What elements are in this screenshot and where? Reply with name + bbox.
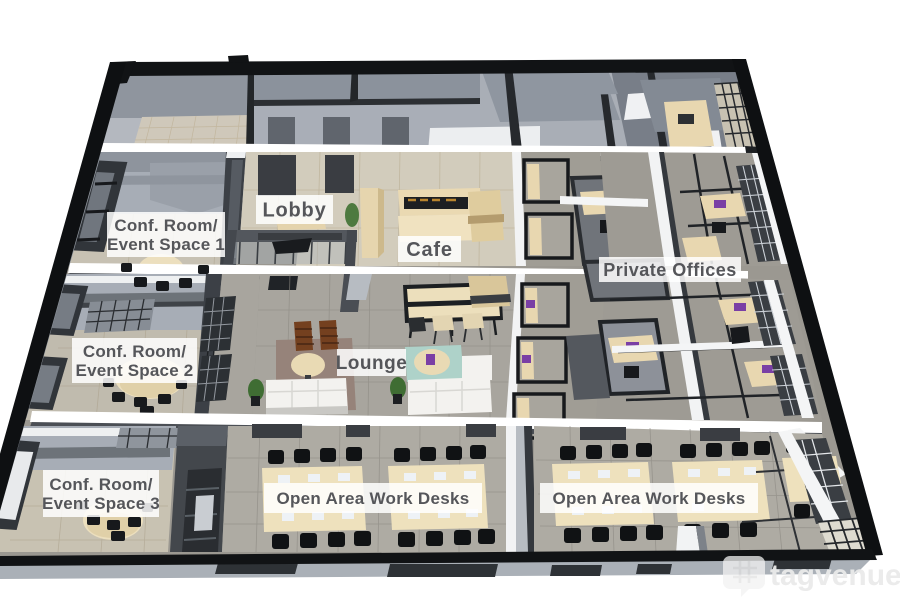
svg-text:Event Space 3: Event Space 3	[42, 494, 160, 513]
svg-text:Open Area Work Desks: Open Area Work Desks	[276, 489, 469, 508]
svg-text:Conf. Room/: Conf. Room/	[49, 475, 152, 494]
svg-text:tagvenue: tagvenue	[770, 559, 900, 592]
svg-text:Event Space 1: Event Space 1	[107, 235, 225, 254]
svg-text:Open Area Work Desks: Open Area Work Desks	[552, 489, 745, 508]
svg-text:Lobby: Lobby	[263, 200, 327, 222]
svg-text:Cafe: Cafe	[406, 239, 453, 261]
svg-text:Private Offices: Private Offices	[603, 260, 737, 280]
svg-text:Conf. Room/: Conf. Room/	[114, 216, 217, 235]
svg-text:Event Space 2: Event Space 2	[76, 361, 194, 380]
svg-text:Conf. Room/: Conf. Room/	[83, 342, 186, 361]
svg-text:Lounge: Lounge	[336, 353, 408, 374]
